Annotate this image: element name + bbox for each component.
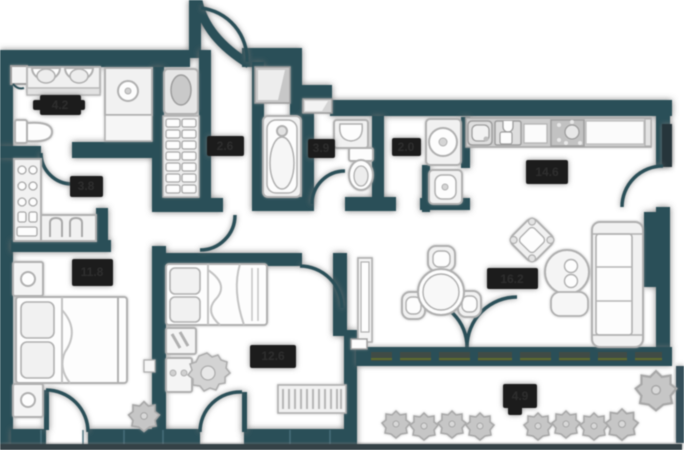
svg-text:4.2: 4.2 <box>52 98 69 112</box>
svg-text:11.8: 11.8 <box>81 265 104 279</box>
svg-text:3.9: 3.9 <box>313 141 330 155</box>
svg-text:12.6: 12.6 <box>261 349 285 363</box>
svg-text:2.0: 2.0 <box>398 140 415 154</box>
svg-text:3.8: 3.8 <box>78 179 95 193</box>
svg-text:14.6: 14.6 <box>535 165 559 179</box>
svg-text:2.6: 2.6 <box>217 139 234 153</box>
svg-text:4.9: 4.9 <box>512 389 529 403</box>
svg-text:16.2: 16.2 <box>500 272 524 286</box>
